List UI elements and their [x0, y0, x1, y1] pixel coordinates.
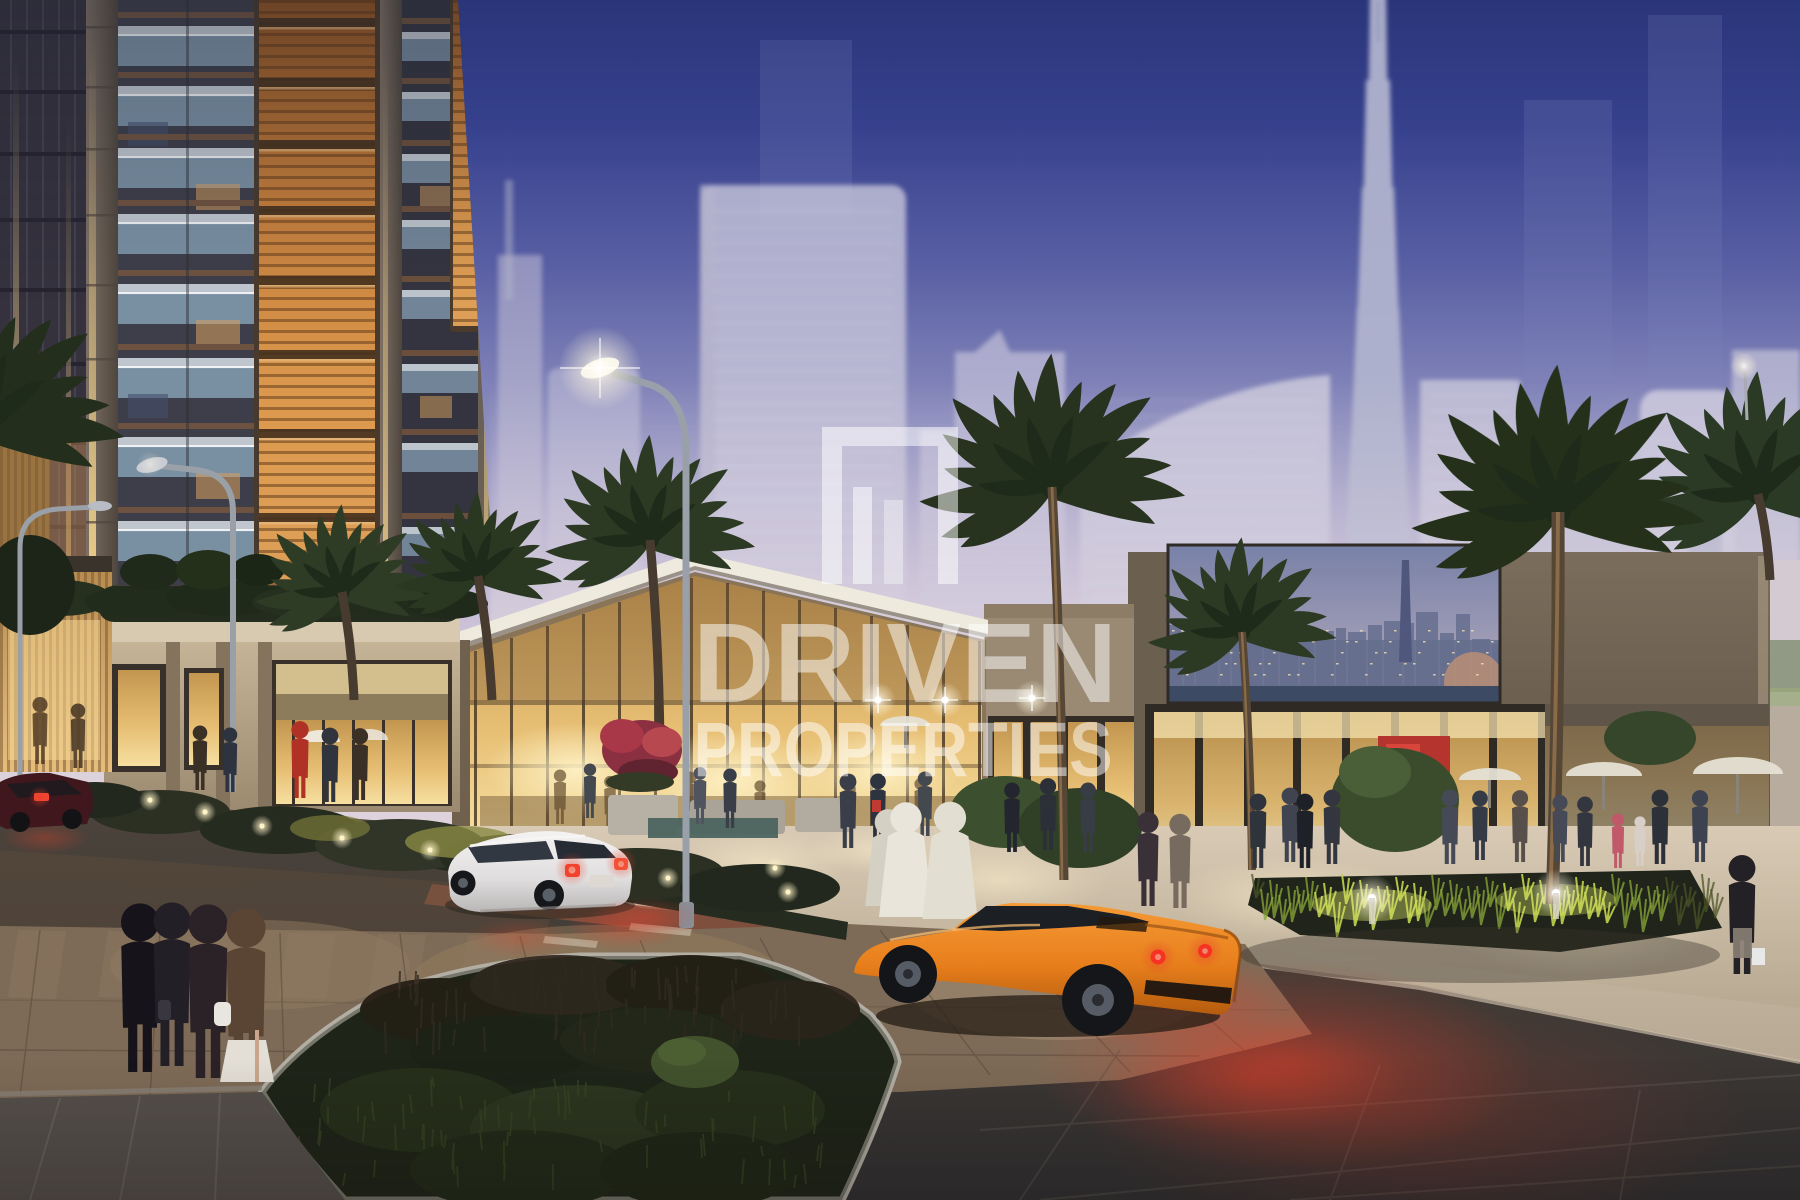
svg-text:PROPERTIES: PROPERTIES — [694, 707, 1113, 793]
